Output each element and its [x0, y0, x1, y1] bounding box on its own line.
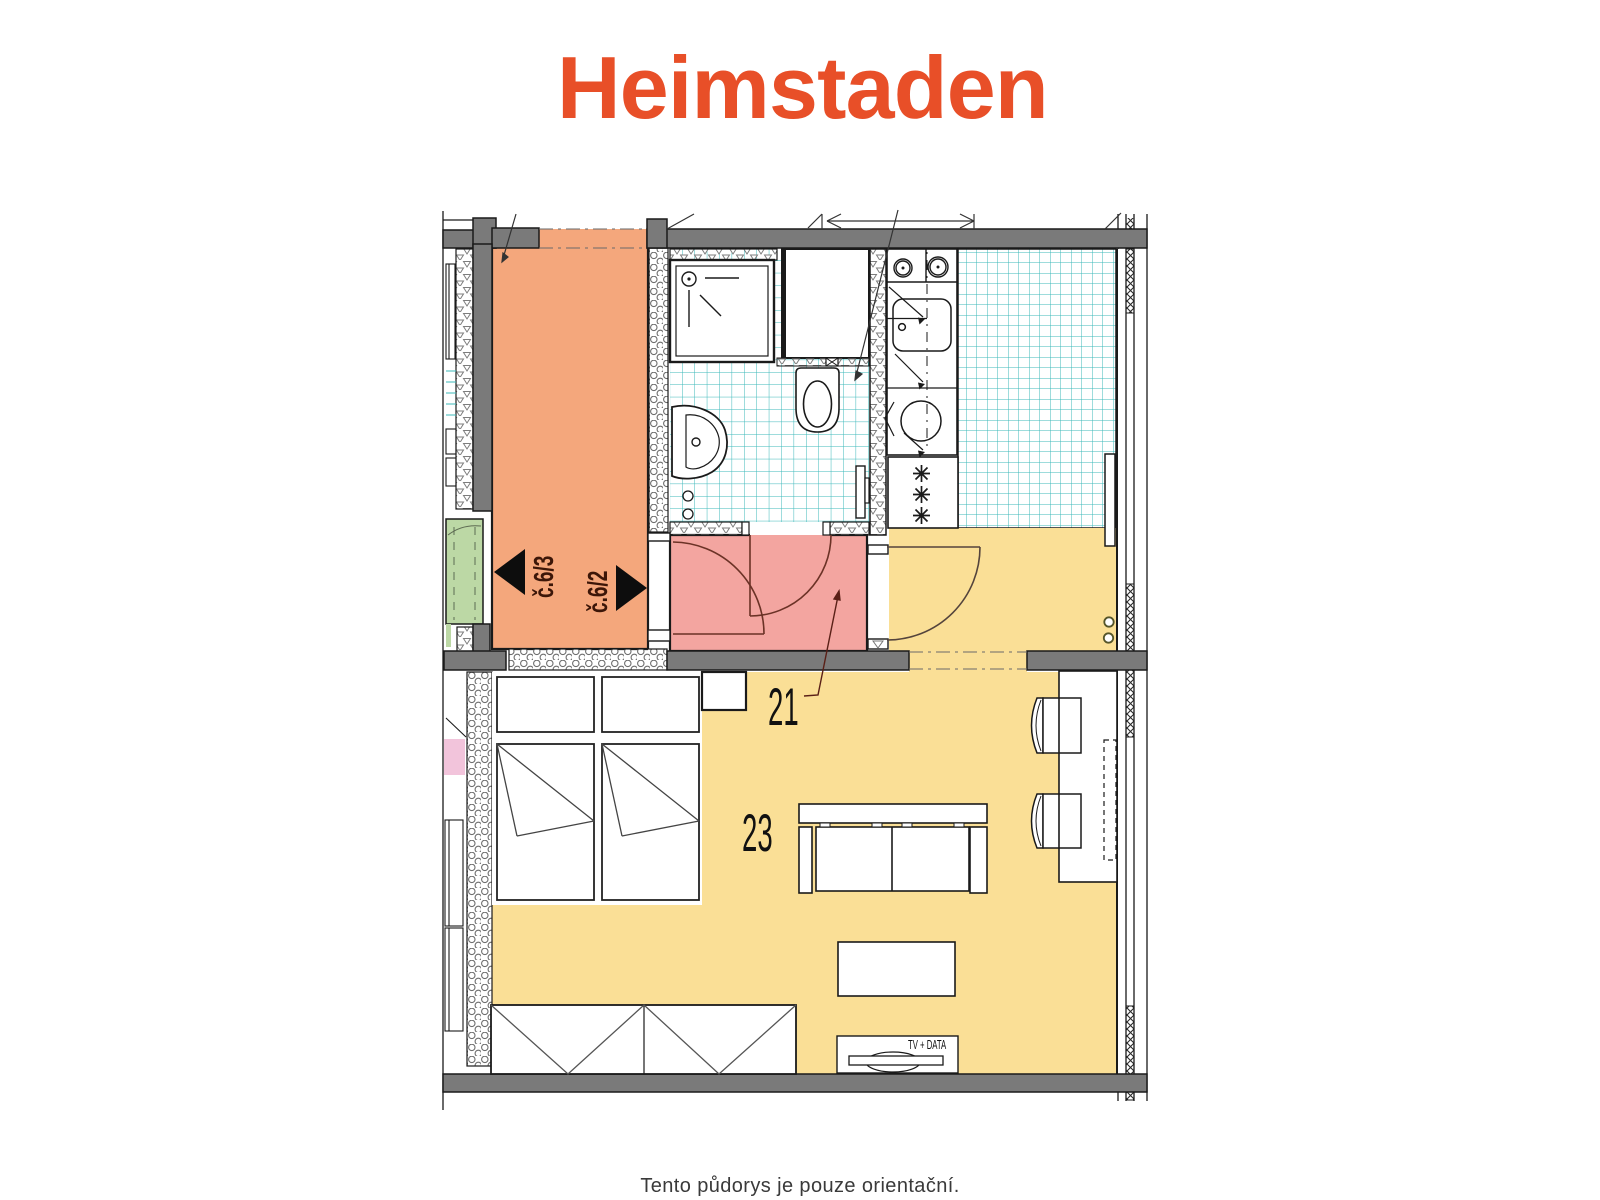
- svg-text:č.6/3: č.6/3: [528, 556, 560, 598]
- svg-text:č.6/2: č.6/2: [582, 571, 614, 613]
- svg-text:21: 21: [768, 677, 799, 736]
- svg-text:23: 23: [742, 803, 773, 862]
- svg-text:Tento půdorys je pouze orienta: Tento půdorys je pouze orientační.: [640, 1175, 959, 1197]
- svg-text:Heimstaden: Heimstaden: [557, 38, 1048, 137]
- svg-text:TV + DATA: TV + DATA: [908, 1039, 946, 1052]
